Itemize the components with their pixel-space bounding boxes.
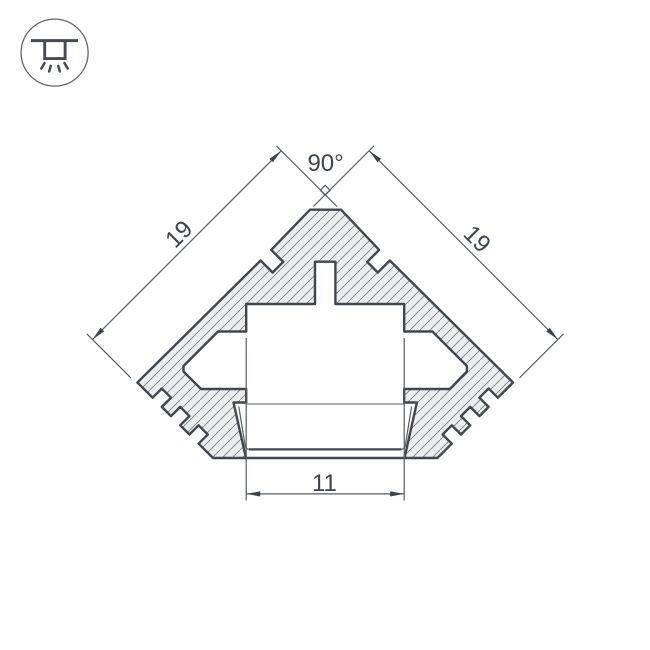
svg-text:19: 19 — [160, 215, 198, 253]
svg-text:11: 11 — [312, 470, 337, 497]
svg-text:90°: 90° — [307, 150, 343, 177]
svg-text:19: 19 — [458, 220, 496, 258]
